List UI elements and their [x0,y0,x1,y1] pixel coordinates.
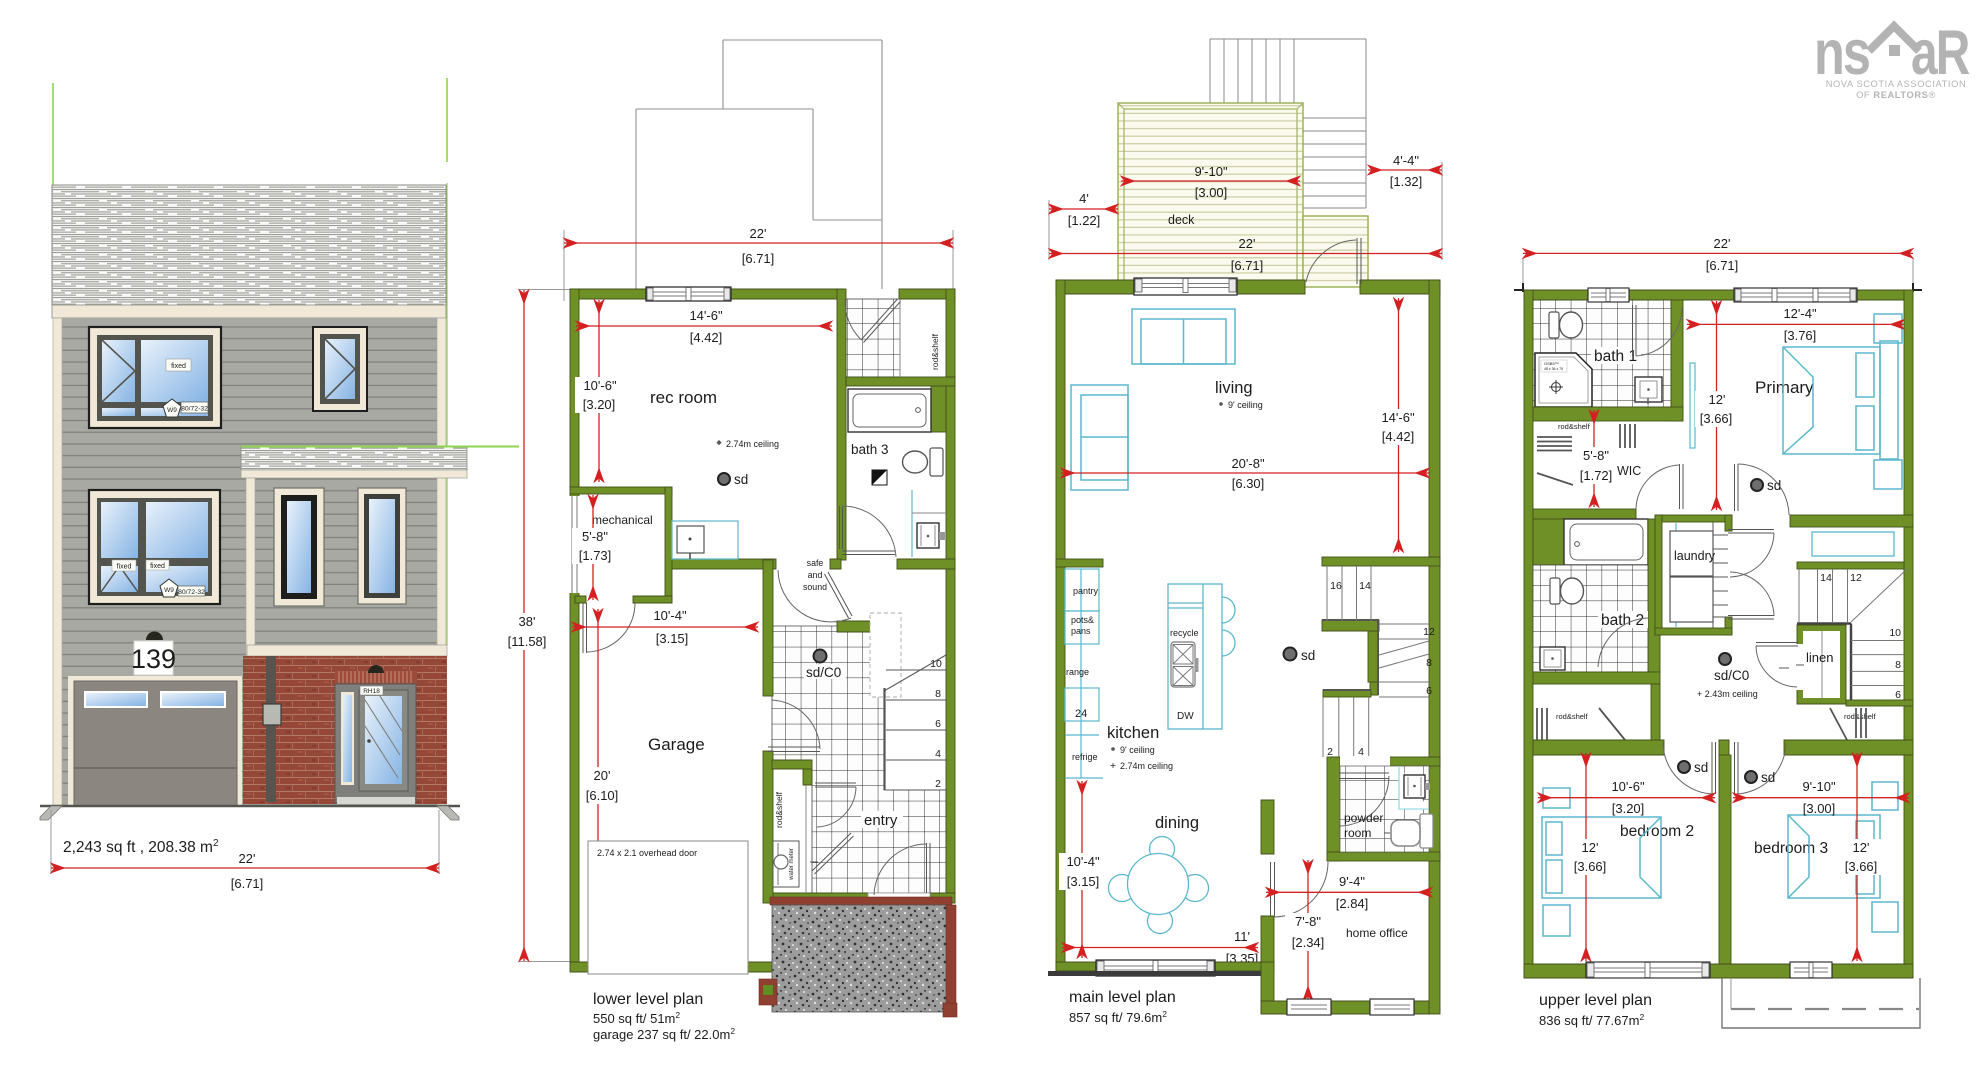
svg-text:W9: W9 [167,407,177,414]
svg-text:22': 22' [239,851,256,866]
svg-text:fixed: fixed [117,564,132,571]
svg-text:48 x 36 x 75: 48 x 36 x 75 [1544,367,1563,371]
svg-text:living: living [1215,379,1253,397]
svg-text:24: 24 [1075,708,1087,720]
svg-text:room: room [1344,826,1371,840]
svg-text:[3.66]: [3.66] [1574,859,1607,874]
svg-text:ns: ns [1814,18,1869,89]
svg-text:bath 3: bath 3 [851,442,889,457]
svg-text:2: 2 [935,778,941,790]
svg-text:[3.66]: [3.66] [1845,859,1878,874]
svg-text:[4.42]: [4.42] [1382,429,1415,444]
svg-text:4: 4 [935,748,941,760]
svg-text:[2.84]: [2.84] [1336,896,1369,911]
svg-text:14: 14 [1359,580,1371,592]
svg-text:[1.22]: [1.22] [1068,213,1101,228]
svg-text:entry: entry [864,812,898,829]
svg-text:[3.20]: [3.20] [583,397,616,412]
svg-text:bath 2: bath 2 [1601,612,1644,629]
svg-text:garage 237 sq ft/ 22.0m2: garage 237 sq ft/ 22.0m2 [593,1026,735,1042]
svg-text:14: 14 [1820,572,1832,584]
svg-text:lower level plan: lower level plan [593,991,703,1008]
svg-text:safe: safe [807,558,824,568]
svg-text:80/72-32: 80/72-32 [178,589,205,596]
svg-text:pantry: pantry [1073,586,1099,596]
svg-text:RH18: RH18 [363,688,380,695]
svg-text:sd: sd [1694,760,1708,775]
svg-text:sd: sd [734,472,748,487]
svg-text:12: 12 [1423,626,1435,638]
svg-text:12': 12' [1582,840,1599,855]
svg-text:[3.76]: [3.76] [1784,328,1817,343]
svg-text:139: 139 [131,644,176,674]
svg-text:4'-4": 4'-4" [1393,153,1419,168]
svg-text:12: 12 [1850,572,1862,584]
svg-text:bedroom 2: bedroom 2 [1620,823,1694,840]
svg-text:12': 12' [1709,392,1726,407]
svg-text:[3.15]: [3.15] [656,631,689,646]
svg-text:home office: home office [1346,926,1408,940]
svg-text:range: range [1066,667,1089,677]
svg-text:aR: aR [1911,16,1970,87]
svg-text:upper level plan: upper level plan [1539,992,1652,1009]
svg-text:[3.20]: [3.20] [1612,801,1645,816]
svg-text:6: 6 [1426,685,1432,697]
svg-text:deck: deck [1168,213,1195,227]
svg-text:WIC: WIC [1617,464,1641,478]
svg-text:8: 8 [1426,657,1432,669]
svg-text:+ 2.43m ceiling: + 2.43m ceiling [1697,689,1758,699]
svg-text:NOVA SCOTIA ASSOCIATION: NOVA SCOTIA ASSOCIATION [1826,79,1967,89]
svg-text:bath 1: bath 1 [1594,348,1637,365]
svg-text:pots&: pots& [1071,615,1094,625]
svg-text:22': 22' [1239,236,1256,251]
svg-text:2.74m ceiling: 2.74m ceiling [726,439,779,449]
svg-text:14'-6": 14'-6" [689,308,723,323]
svg-text:[6.71]: [6.71] [1231,258,1264,273]
svg-text:10: 10 [930,658,942,670]
svg-text:bedroom 3: bedroom 3 [1754,840,1828,857]
svg-text:20'-8": 20'-8" [1231,456,1265,471]
svg-text:[3.66]: [3.66] [1700,411,1733,426]
svg-text:water meter: water meter [789,848,795,881]
svg-text:W9: W9 [164,587,174,594]
svg-text:2,243 sq ft , 208.38 m2: 2,243 sq ft , 208.38 m2 [63,838,219,856]
svg-text:6: 6 [1895,689,1901,701]
svg-text:12'-4": 12'-4" [1783,306,1817,321]
svg-text:9'-10": 9'-10" [1194,164,1228,179]
svg-text:10'-6": 10'-6" [1611,779,1645,794]
svg-text:80/72-32: 80/72-32 [181,406,208,413]
svg-text:sd/C0: sd/C0 [806,665,841,680]
svg-text:sd: sd [1301,648,1315,663]
svg-text:9'-10": 9'-10" [1802,779,1836,794]
svg-text:2.74m ceiling: 2.74m ceiling [1120,761,1173,771]
svg-text:mechanical: mechanical [592,513,653,527]
svg-text:12': 12' [1853,840,1870,855]
svg-text:[3.15]: [3.15] [1067,874,1100,889]
svg-text:dining: dining [1155,814,1199,832]
svg-text:kitchen: kitchen [1107,724,1159,742]
svg-text:9'-4": 9'-4" [1339,874,1365,889]
svg-text:[6.30]: [6.30] [1232,476,1265,491]
svg-text:10: 10 [1889,627,1901,639]
svg-text:6: 6 [935,718,941,730]
svg-text:9' ceiling: 9' ceiling [1120,745,1155,755]
svg-text:[3.00]: [3.00] [1803,801,1836,816]
svg-text:pans: pans [1071,626,1091,636]
svg-text:10'-6": 10'-6" [583,378,617,393]
svg-text:and: and [808,570,823,580]
svg-text:rod&shelf: rod&shelf [774,791,784,828]
svg-text:[4.42]: [4.42] [690,330,723,345]
svg-text:9' ceiling: 9' ceiling [1228,400,1263,410]
svg-text:sd: sd [1761,770,1775,785]
svg-text:20': 20' [594,768,611,783]
svg-text:[11.58]: [11.58] [508,634,547,649]
svg-text:38': 38' [519,614,536,629]
svg-text:[1.72]: [1.72] [1580,468,1613,483]
svg-text:[2.34]: [2.34] [1292,935,1325,950]
svg-text:16: 16 [1330,580,1342,592]
svg-text:5'-8": 5'-8" [582,529,608,544]
svg-text:[1.73]: [1.73] [579,548,612,563]
svg-text:[1.32]: [1.32] [1390,174,1423,189]
svg-text:22': 22' [1714,236,1731,251]
svg-text:rod&shelf: rod&shelf [930,333,940,370]
svg-text:powder: powder [1344,811,1383,825]
svg-text:fixed: fixed [171,363,186,370]
svg-text:recycle: recycle [1170,628,1199,638]
svg-text:Garage: Garage [648,735,705,754]
svg-text:[6.71]: [6.71] [1706,258,1739,273]
svg-text:DW: DW [1177,711,1194,722]
svg-text:11': 11' [1234,929,1250,944]
svg-text:8: 8 [935,688,941,700]
svg-text:laundry: laundry [1674,549,1716,563]
svg-text:[6.71]: [6.71] [742,251,775,266]
svg-text:[6.10]: [6.10] [586,788,619,803]
svg-text:linen: linen [1806,650,1833,665]
svg-text:4': 4' [1079,191,1089,206]
svg-text:sound: sound [803,582,827,592]
svg-text:14'-6": 14'-6" [1381,410,1415,425]
svg-text:8: 8 [1895,659,1901,671]
svg-text:22': 22' [750,226,767,241]
svg-text:fixed: fixed [150,563,165,570]
svg-text:5'-8": 5'-8" [1583,448,1609,463]
svg-text:550 sq ft/ 51m2: 550 sq ft/ 51m2 [593,1010,680,1026]
svg-text:7'-8": 7'-8" [1295,914,1321,929]
svg-text:857 sq ft/ 79.6m2: 857 sq ft/ 79.6m2 [1069,1009,1167,1025]
svg-text:[6.71]: [6.71] [231,876,264,891]
svg-text:2: 2 [1327,746,1333,758]
svg-text:OF REALTORS®: OF REALTORS® [1856,90,1936,100]
svg-text:10'-4": 10'-4" [653,608,687,623]
svg-text:main level plan: main level plan [1069,989,1176,1006]
svg-text:refrige: refrige [1072,752,1098,762]
svg-text:10'-4": 10'-4" [1066,854,1100,869]
svg-text:sd/C0: sd/C0 [1714,668,1749,683]
svg-text:[3.00]: [3.00] [1195,185,1228,200]
svg-text:2.74 x 2.1 overhead door: 2.74 x 2.1 overhead door [597,848,697,858]
svg-text:OSB5™: OSB5™ [1544,361,1559,366]
svg-text:836 sq ft/ 77.67m2: 836 sq ft/ 77.67m2 [1539,1012,1644,1028]
svg-text:rod&shelf: rod&shelf [1558,422,1591,431]
svg-text:rod&shelf: rod&shelf [1556,712,1589,721]
svg-text:Primary: Primary [1755,378,1814,397]
svg-text:rec room: rec room [650,388,717,407]
